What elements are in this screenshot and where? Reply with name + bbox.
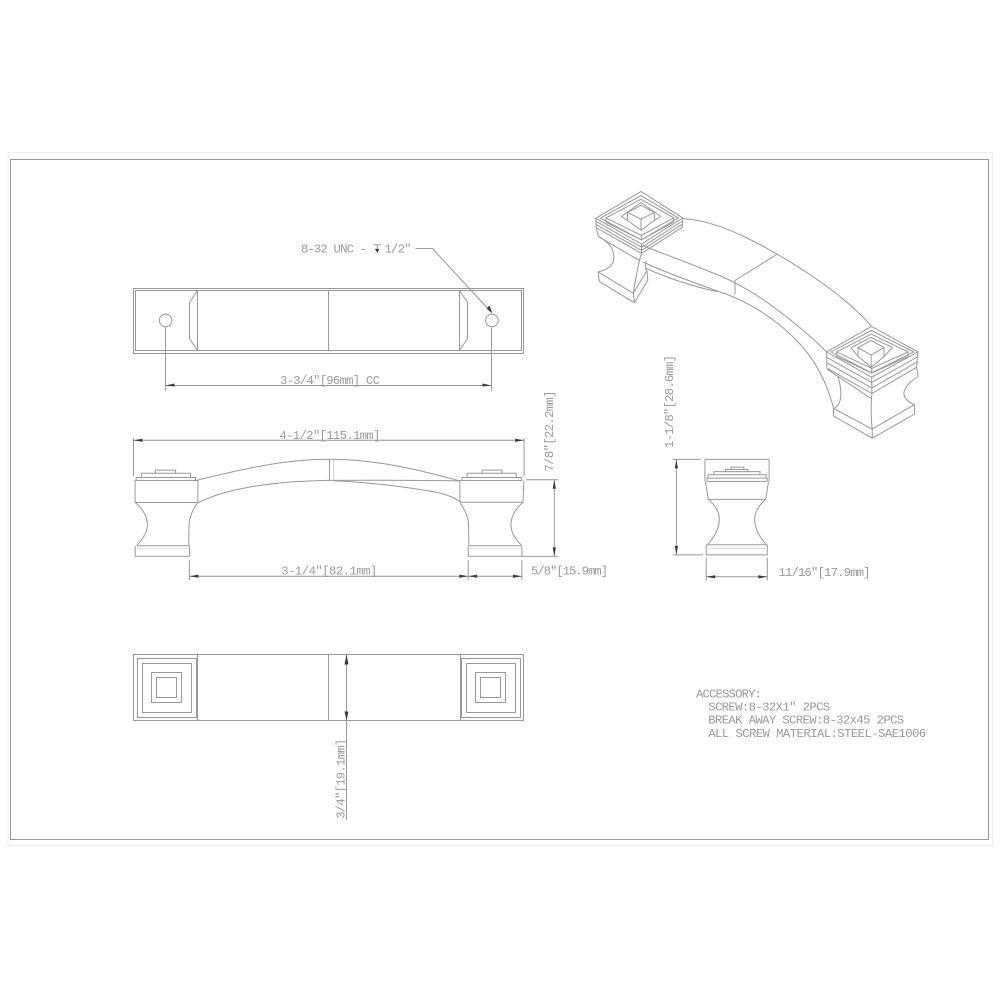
svg-text:3-1/4"[82.1mm]: 3-1/4"[82.1mm] (281, 565, 377, 579)
svg-text:11/16"[17.9mm]: 11/16"[17.9mm] (779, 566, 871, 580)
svg-text:BREAK AWAY SCREW:8-32x45 2PCS: BREAK AWAY SCREW:8-32x45 2PCS (708, 714, 904, 728)
svg-text:ALL SCREW MATERIAL:STEEL-SAE10: ALL SCREW MATERIAL:STEEL-SAE1006 (708, 727, 926, 741)
svg-text:5/8"[15.9mm]: 5/8"[15.9mm] (531, 565, 608, 579)
svg-text:ACCESSORY:: ACCESSORY: (696, 687, 762, 701)
svg-text:4-1/2"[115.1mm]: 4-1/2"[115.1mm] (279, 429, 380, 443)
svg-text:8-32 UNC -: 8-32 UNC - (301, 242, 367, 256)
svg-text:7/8"[22.2mm]: 7/8"[22.2mm] (543, 391, 557, 472)
svg-text:3/4"[19.1mm]: 3/4"[19.1mm] (334, 739, 348, 819)
svg-text:1-1/8"[28.6mm]: 1-1/8"[28.6mm] (663, 355, 677, 448)
svg-text:SCREW:8-32X1" 2PCS: SCREW:8-32X1" 2PCS (708, 701, 830, 715)
svg-text:3-3/4"[96mm] CC: 3-3/4"[96mm] CC (280, 374, 380, 388)
svg-text:1/2": 1/2" (385, 242, 412, 256)
